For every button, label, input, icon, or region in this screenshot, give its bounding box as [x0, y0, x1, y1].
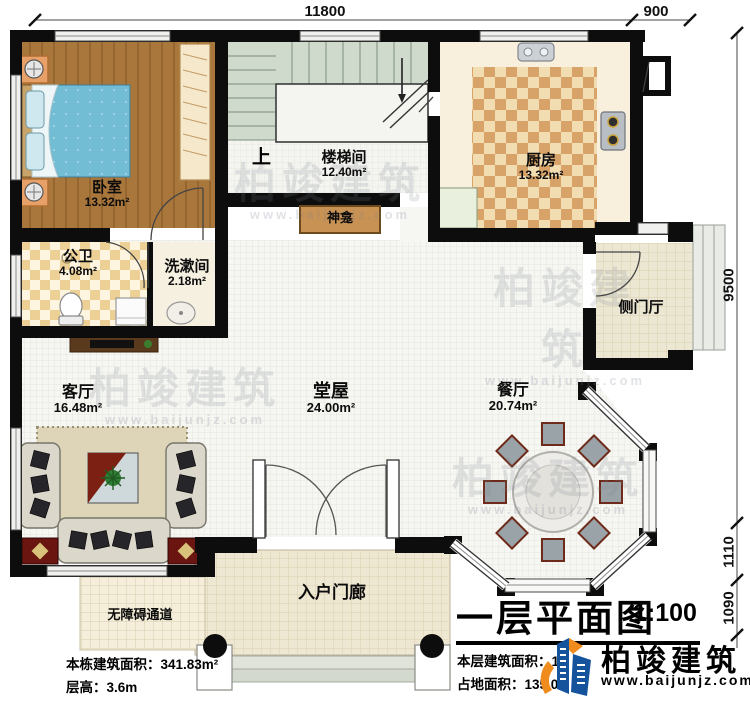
room-label-bedroom: 卧室13.32m² [85, 180, 130, 209]
dim-top-right: 900 [643, 3, 668, 20]
fridge [437, 188, 477, 228]
kitchen-stove [601, 112, 625, 150]
bed [22, 85, 130, 177]
dining-table [484, 423, 622, 561]
dim-top-main: 11800 [305, 3, 346, 20]
dim-right-bottom: 1090 [721, 591, 738, 624]
room-label-living: 客厅 16.48m² [54, 384, 102, 415]
floor-plan-canvas: 柏竣建筑 www.baijunjz.com 柏竣建筑 www.baijunjz.… [0, 0, 750, 704]
wardrobe [180, 44, 210, 180]
entry-porch-floor [195, 550, 450, 655]
dim-right-main: 9500 [721, 268, 738, 301]
room-label-shrine: 神龛 [327, 211, 353, 225]
company-website: www.baijunjz.com [601, 672, 750, 688]
washroom-sink [167, 302, 195, 324]
room-label-kitchen: 厨房13.32m² [519, 153, 564, 182]
room-label-ramp: 无障碍通道 [107, 608, 172, 622]
washing-machine [116, 298, 146, 325]
company-logo-icon [533, 632, 601, 698]
kitchen-sink [518, 43, 554, 61]
room-label-dining: 餐厅 20.74m² [489, 382, 537, 413]
room-label-public-bath: 公卫4.08m² [59, 249, 97, 278]
room-label-washroom: 洗漱间2.18m² [164, 259, 209, 288]
plan-scale: 1:100 [633, 599, 697, 628]
room-label-main-hall: 堂屋24.00m² [307, 382, 355, 415]
room-label-entry-porch: 入户门廊 [298, 584, 366, 602]
stair-up-label: 上 [252, 142, 271, 169]
room-label-side-foyer: 侧门厅 [618, 300, 663, 316]
coffee-table [88, 453, 138, 503]
tv-cabinet [70, 337, 158, 352]
room-label-stairwell: 楼梯间12.40m² [321, 150, 366, 179]
note-floor-height: 层高：3.6m [66, 676, 137, 696]
note-total-area: 本栋建筑面积：341.83m² [66, 653, 218, 673]
dim-right-mid: 1110 [721, 536, 738, 568]
chimney-flue [643, 56, 671, 96]
